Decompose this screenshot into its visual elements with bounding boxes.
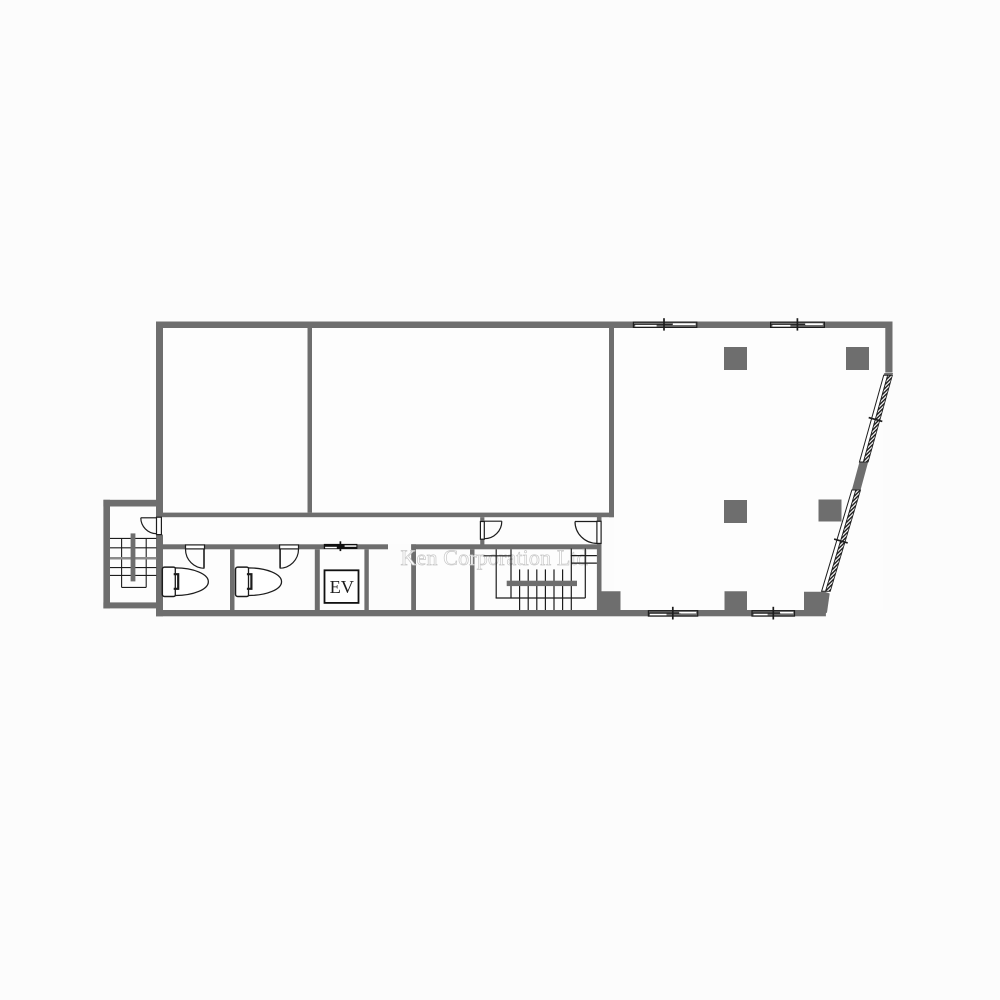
svg-text:Ken Corporation Ltd: Ken Corporation Ltd	[401, 545, 588, 570]
svg-text:EV: EV	[330, 577, 354, 597]
